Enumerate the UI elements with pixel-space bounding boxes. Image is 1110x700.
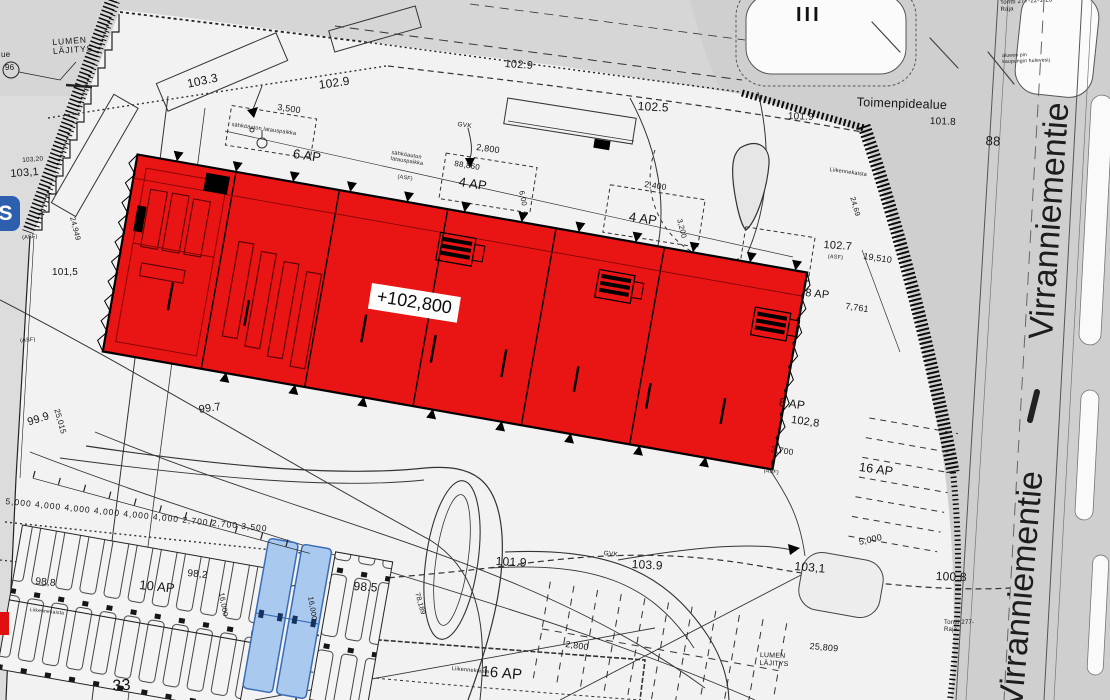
elevation-103-20: 103,20 (22, 156, 44, 165)
parking-count-8ap-a: 8 AP (805, 287, 830, 302)
elevation-100-8: 100.8 (936, 570, 967, 584)
number-33: 33 (112, 677, 131, 696)
elevation-101-5: 101,5 (52, 267, 78, 278)
elevation-98-8: 98,8 (35, 576, 56, 589)
elevation-101-8: 101.8 (930, 116, 956, 128)
dimension-6-00: 6,00 (517, 190, 528, 207)
building-floors-label: III (796, 4, 822, 27)
elevation-101-9-a: 101.9 (788, 111, 814, 123)
snow-storage-label-bottom: LUMEN LÄJITYS (759, 652, 789, 668)
note-gvk-bottom: GVK (603, 550, 618, 559)
note-partial-ue: ue (1, 51, 10, 60)
elevation-102-9-b: 102.9 (504, 58, 533, 72)
elevation-98-5: 98.5 (353, 580, 378, 595)
red-edge-mark (0, 612, 9, 635)
number-96: 96 (5, 64, 14, 73)
elevation-103-9: 103.9 (631, 558, 663, 573)
snow-storage-label-top: LUMEN LÄJITYS (52, 35, 94, 56)
note-asf-3: (ASF) (22, 234, 38, 241)
elevation-102-5: 102.5 (637, 100, 669, 115)
note-plot-boundary-right: Tontti 277- Raja (944, 620, 974, 633)
note-asf-4: (ASF) (20, 337, 36, 344)
elevation-103-1-left: 103,1 (10, 166, 39, 180)
elevation-101-9-b: 101.9 (495, 555, 527, 570)
site-plan-canvas: LUMEN LÄJITYS LUMEN LÄJITYS Toimenpideal… (0, 0, 1110, 700)
s-logo: S (0, 196, 20, 231)
number-88: 88 (985, 134, 1001, 149)
elevation-102-7: 102.7 (823, 239, 852, 253)
elevation-103-1-right: 103,1 (794, 560, 826, 576)
elevation-98-2: 98,2 (187, 568, 208, 581)
note-asf-2: (ASF) (828, 254, 844, 261)
